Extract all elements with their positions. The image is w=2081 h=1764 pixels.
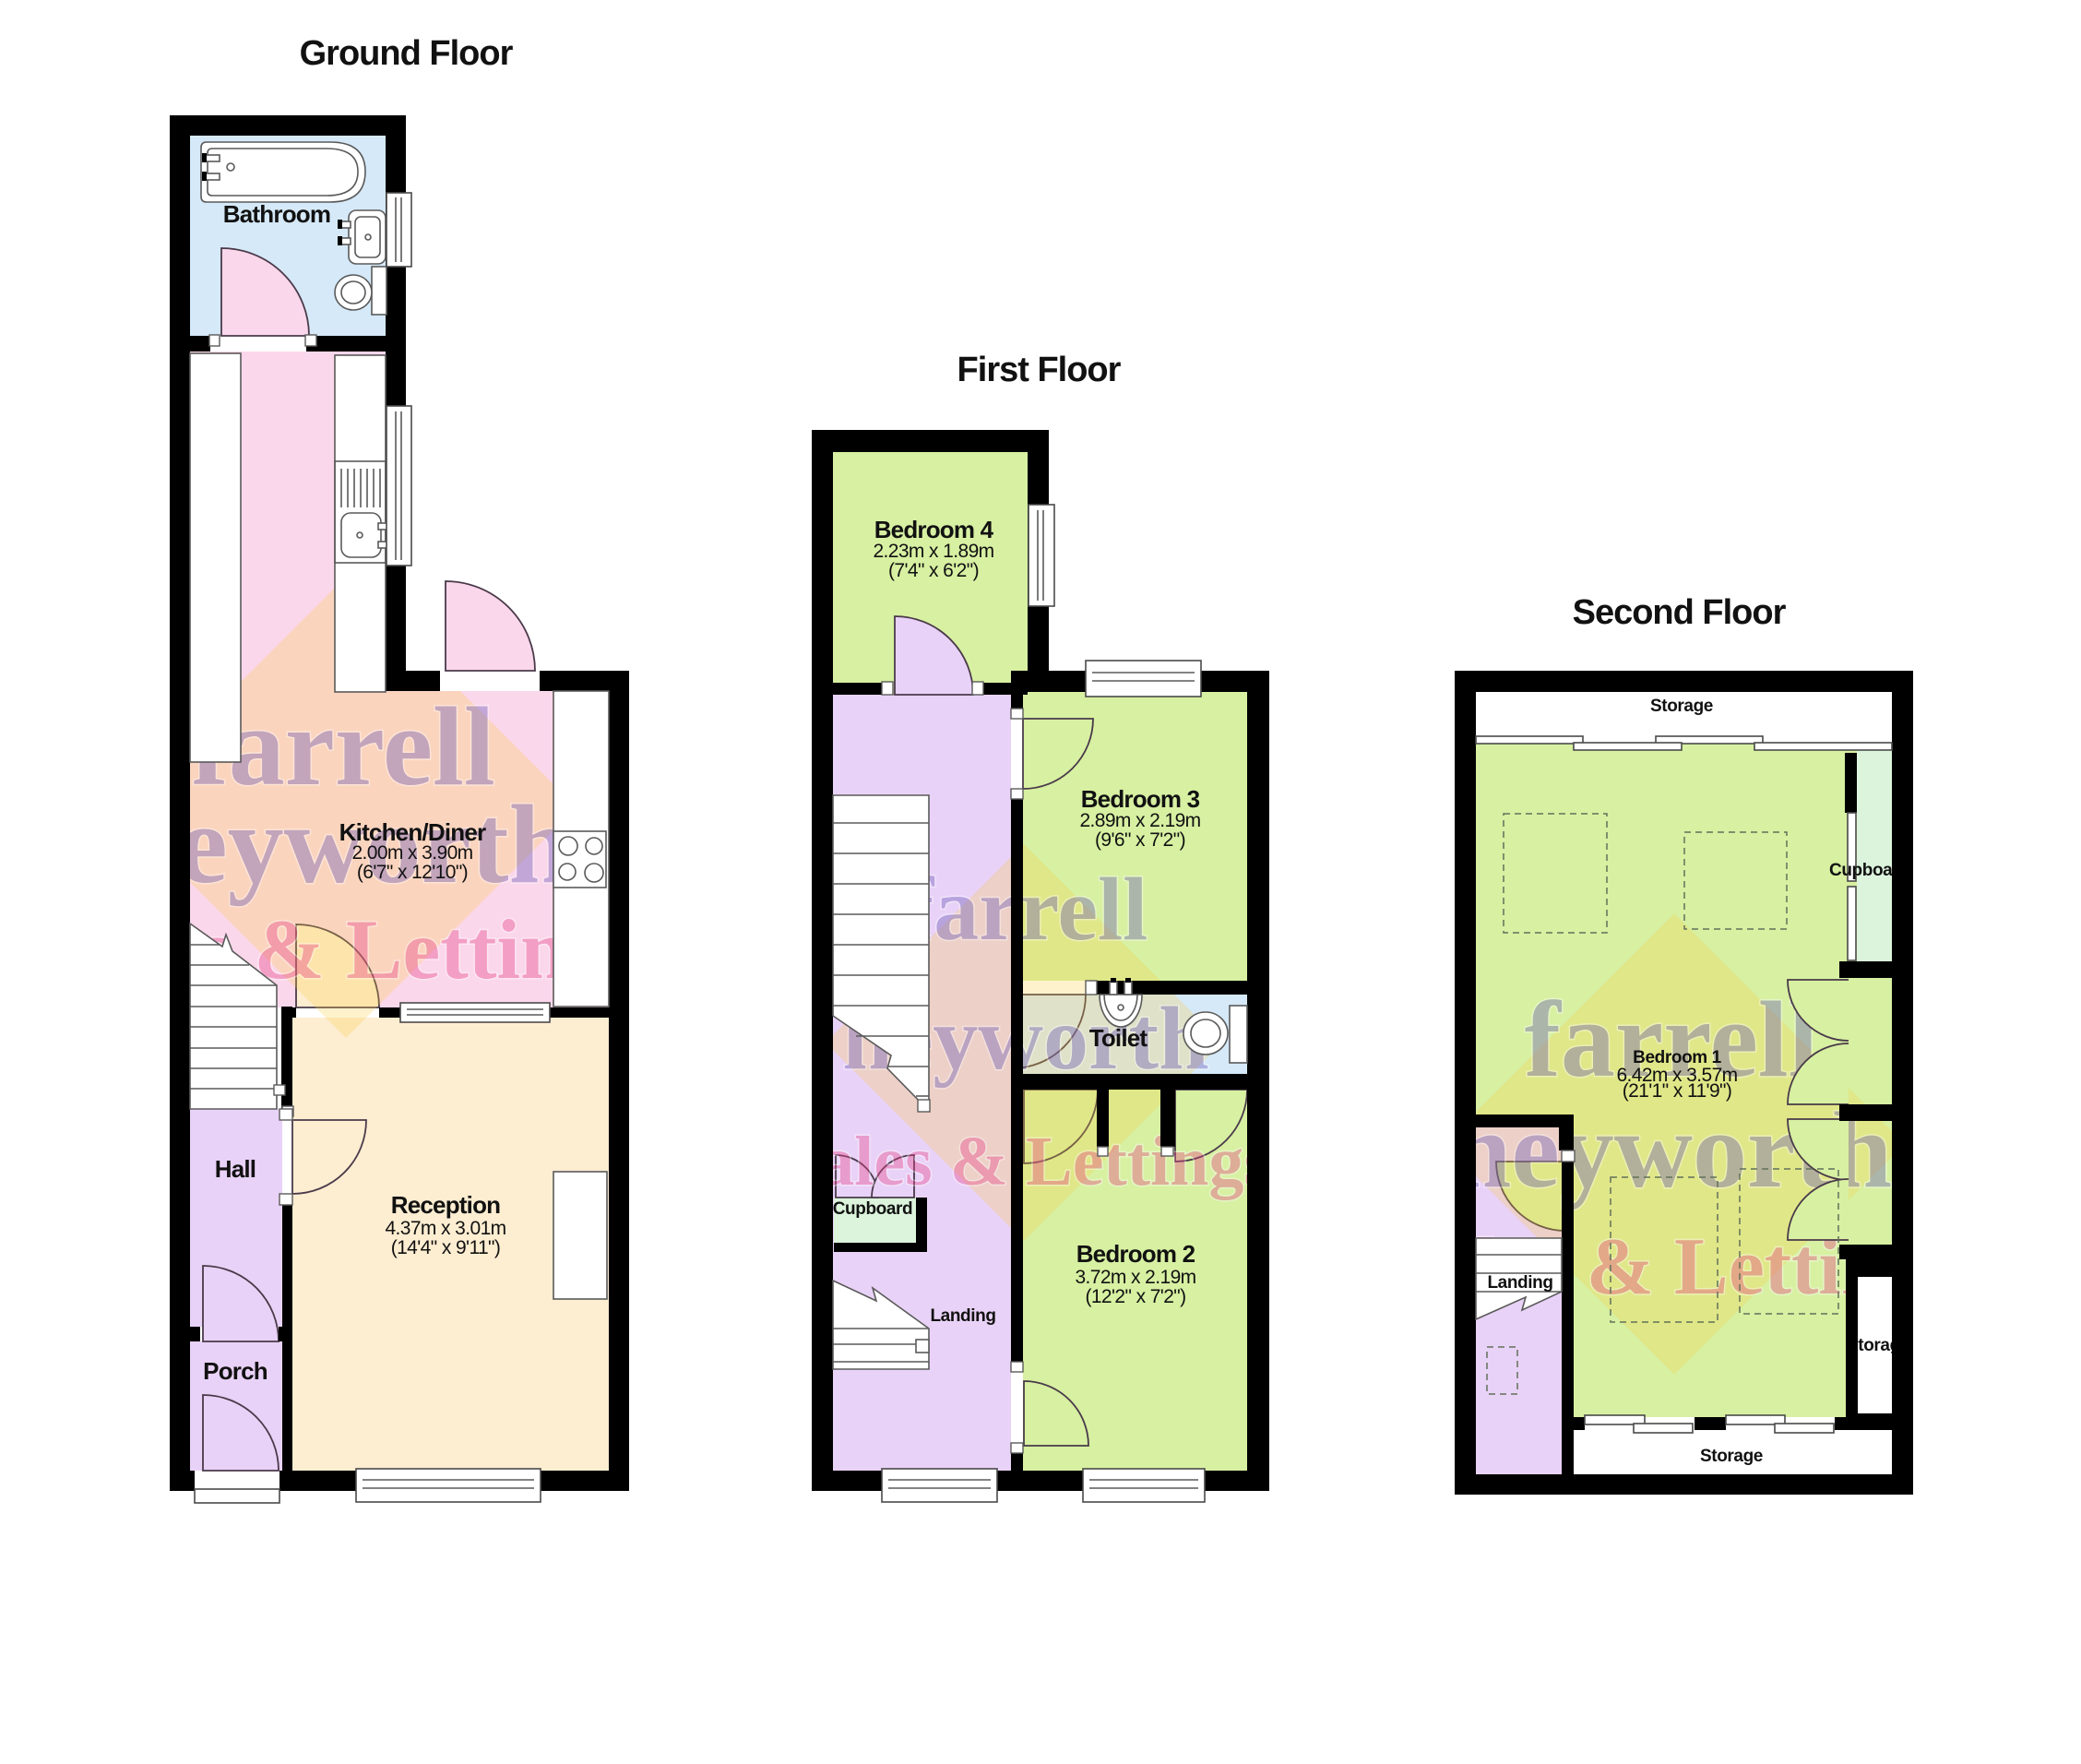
svg-text:(14'4" x 9'11"): (14'4" x 9'11") (391, 1237, 501, 1258)
svg-text:Bedroom 2: Bedroom 2 (1076, 1240, 1195, 1268)
svg-text:3.72m x 2.19m: 3.72m x 2.19m (1075, 1267, 1195, 1288)
svg-text:2.89m x 2.19m: 2.89m x 2.19m (1079, 810, 1200, 831)
svg-text:Landing: Landing (1487, 1273, 1552, 1293)
svg-text:First Floor: First Floor (957, 351, 1122, 389)
svg-text:Second Floor: Second Floor (1573, 593, 1787, 632)
svg-text:Porch: Porch (203, 1357, 268, 1385)
svg-text:(21'1" x 11'9"): (21'1" x 11'9") (1623, 1080, 1732, 1102)
svg-text:Bedroom 3: Bedroom 3 (1081, 785, 1200, 813)
svg-text:(6'7" x 12'10"): (6'7" x 12'10") (357, 862, 468, 883)
svg-text:Toilet: Toilet (1089, 1024, 1148, 1052)
svg-text:2.00m x 3.90m: 2.00m x 3.90m (351, 842, 472, 864)
svg-text:Storage: Storage (1700, 1447, 1763, 1466)
svg-text:Storage: Storage (1650, 697, 1713, 716)
svg-text:Landing: Landing (930, 1306, 995, 1326)
svg-text:Sales & Lettings: Sales & Lettings (780, 1123, 1271, 1200)
svg-text:Cupboard: Cupboard (833, 1199, 913, 1219)
svg-text:2.23m x 1.89m: 2.23m x 1.89m (873, 541, 993, 562)
svg-text:(12'2" x 7'2"): (12'2" x 7'2") (1085, 1286, 1185, 1307)
svg-text:Hall: Hall (215, 1155, 256, 1183)
svg-text:Reception: Reception (391, 1191, 500, 1219)
svg-text:4.37m x 3.01m: 4.37m x 3.01m (385, 1218, 505, 1239)
svg-text:(9'6" x 7'2"): (9'6" x 7'2") (1095, 829, 1185, 851)
svg-text:farrell: farrell (904, 860, 1148, 959)
svg-text:Ground Floor: Ground Floor (300, 34, 514, 73)
svg-text:Bedroom 4: Bedroom 4 (874, 516, 994, 543)
svg-text:Bathroom: Bathroom (223, 200, 330, 228)
svg-text:(7'4" x 6'2"): (7'4" x 6'2") (888, 560, 979, 581)
